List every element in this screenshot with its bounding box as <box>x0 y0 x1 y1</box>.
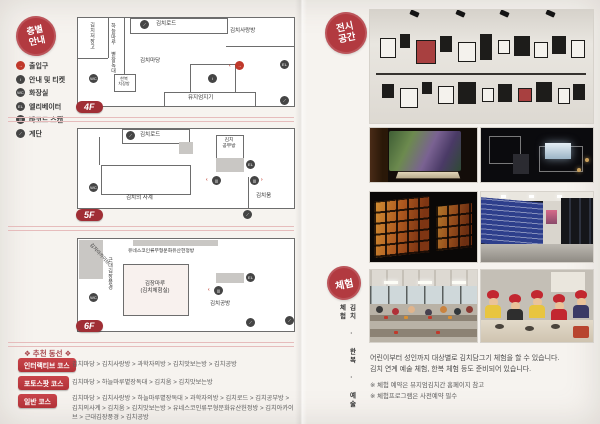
lightbox-panel <box>436 203 472 251</box>
room-label-gongbang: 김치공방 <box>210 301 230 308</box>
person <box>454 308 461 315</box>
info-ticket-icon: i <box>16 75 25 84</box>
red-basin <box>573 326 589 338</box>
exhibition-badge: 전시 공간 <box>321 8 371 58</box>
elevator-icon: EL <box>246 273 255 282</box>
floor-plan-5f: 김치로드 ⟋ 김치 공부방 EL 김치의 사계 ‹ ||| ||| › 김치움 … <box>77 128 295 209</box>
elevator-icon: EL <box>280 60 289 69</box>
frame <box>534 42 548 58</box>
barcode-icon: ||| <box>212 176 221 185</box>
barcode-icon: ||| <box>250 176 259 185</box>
wood-wall <box>370 128 388 182</box>
spotlight-icon <box>545 10 555 18</box>
person <box>376 306 383 313</box>
frame <box>380 38 396 58</box>
barcode-arrow: ‹ <box>206 177 208 183</box>
stairs-icon: ⟋ <box>246 318 255 327</box>
section-divider <box>8 226 294 231</box>
experience-side-label: 김치 · 한복 · 예술 체험 <box>336 304 356 424</box>
legend-item-entrance: → 출입구 <box>16 60 78 73</box>
frame <box>400 88 418 108</box>
frame <box>482 88 494 102</box>
frame <box>514 36 530 56</box>
room-block <box>216 273 244 283</box>
frame <box>416 40 436 64</box>
floor-tag-6f: 6F <box>76 320 103 332</box>
bowl <box>525 326 534 331</box>
wall <box>108 18 109 58</box>
wall <box>226 46 294 47</box>
room-label-unesco: 유네스코인류무형문화유산헌정방 <box>128 249 194 255</box>
info-ticket-icon: i <box>208 74 217 83</box>
video-screen <box>545 143 571 159</box>
spotlight-icon <box>455 10 465 18</box>
course-route-general: 김치마당 > 김치사랑방 > 하늘마루볕장독대 > 과학자의방 > 김치로드 >… <box>72 394 296 423</box>
experience-badge: 체험 <box>324 263 364 303</box>
projected-mural <box>389 131 461 171</box>
restroom-icon: WC <box>89 293 98 302</box>
food-item <box>404 316 408 319</box>
badge-text: 안내 <box>28 34 46 48</box>
wall <box>124 18 125 80</box>
frame <box>573 84 585 100</box>
brochure-spread: 층별 안내 → 출입구 i 안내 및 티켓 WC 화장실 EL 엘리베이터 ||… <box>0 0 600 424</box>
frame <box>458 42 476 62</box>
entrance-icon: → <box>235 61 244 70</box>
warm-light <box>585 158 589 162</box>
wall <box>78 58 108 59</box>
lit-table <box>396 172 460 179</box>
legend-item-elevator: EL 엘리베이터 <box>16 101 78 114</box>
frame <box>536 82 552 102</box>
elevator-icon: EL <box>246 160 255 169</box>
bowl <box>551 324 560 329</box>
wall <box>99 137 100 165</box>
frame <box>558 88 570 104</box>
room-seasons <box>101 165 191 195</box>
food-item <box>394 331 398 334</box>
stairs-icon: ⟋ <box>140 20 149 29</box>
section-divider <box>8 117 294 122</box>
room-label-sarangbang: 김치사랑방 <box>230 28 255 35</box>
photo-media-art-room <box>370 128 477 182</box>
ceiling-light <box>384 281 398 284</box>
food-item <box>428 316 432 319</box>
child-figure <box>573 290 589 320</box>
photo-exhibition-wall <box>370 10 593 123</box>
stairs-icon: ⟋ <box>126 131 135 140</box>
room-label-storage: 김치저장고 <box>89 22 96 56</box>
frame <box>498 40 510 54</box>
poster <box>546 210 557 224</box>
section-divider <box>8 342 294 347</box>
photo-dark-gallery <box>481 128 593 182</box>
display-rail <box>376 73 586 75</box>
floor <box>481 244 593 262</box>
room-label-maru: 김장마루 (김치체험실) <box>130 281 180 295</box>
experience-notes: ※ 체험 예약은 뮤지엄김치간 홈페이지 참고 ※ 체험프로그램은 사전예약 필… <box>370 381 592 403</box>
experience-description: 어린이부터 성인까지 대상별로 김치담그기 체험을 할 수 있습니다. 김치 연… <box>370 353 592 375</box>
food-item <box>448 316 452 319</box>
frame <box>440 36 452 52</box>
workshop-table <box>370 329 477 337</box>
frame <box>498 84 512 102</box>
wall <box>248 177 249 208</box>
frame <box>480 34 492 60</box>
warm-light <box>577 168 581 172</box>
lightbox-panel <box>374 196 430 258</box>
elevator-icon: EL <box>16 102 25 111</box>
frame <box>518 88 532 102</box>
frame <box>422 82 432 94</box>
child-figure <box>529 290 545 320</box>
floor-tag-5f: 5F <box>76 209 103 221</box>
person <box>440 306 447 313</box>
frame <box>571 40 585 58</box>
bowl <box>495 324 504 329</box>
legend: → 출입구 i 안내 및 티켓 WC 화장실 EL 엘리베이터 ||| 바코드 … <box>16 60 78 141</box>
spotlight-icon <box>499 10 509 18</box>
frame <box>458 82 476 104</box>
glass-doors <box>561 198 593 248</box>
room-label-jangdokdae: 하늘마루 볕장독대 <box>110 23 117 79</box>
course-label-general: 일반 코스 <box>18 394 57 408</box>
course-route-interactive: 김치마당 > 김치사랑방 > 과학자의방 > 김치맛보는방 > 김치공방 <box>72 360 296 370</box>
course-label-photospot: 포토스팟 코스 <box>18 376 69 390</box>
room-label-madang: 김치마당 <box>140 58 160 65</box>
ceiling-light <box>529 195 534 198</box>
ceiling-light <box>418 281 432 284</box>
floor-plan-6f: 김치아카이브 근대김장풍경 유네스코인류무형문화유산헌정방 김장마루 (김치체험… <box>77 238 295 332</box>
room-label-study: 김치 공부방 <box>218 138 240 150</box>
person <box>408 306 415 313</box>
floor-tag-4f: 4F <box>76 101 103 113</box>
floor-plan-4f: 김치로드 ⟋ 김치사랑방 김치마당 김치저장고 하늘마루 볕장독대 한복 치장방… <box>77 17 295 107</box>
barcode-icon: ||| <box>214 286 223 295</box>
barcode-arrow: ‹ <box>208 287 210 293</box>
room-label-modern: 근대김장풍경 <box>107 257 114 303</box>
room-block <box>179 142 193 154</box>
legend-item-restroom: WC 화장실 <box>16 87 78 100</box>
course-route-photospot: 김치마당 > 하늘마루볕장독대 > 김치움 > 김치맛보는방 <box>72 378 296 388</box>
frame <box>400 34 410 48</box>
course-label-interactive: 인터랙티브 코스 <box>18 358 76 372</box>
restroom-icon: WC <box>16 88 25 97</box>
stairs-icon: ⟋ <box>280 96 289 105</box>
legend-item-stairs: ⟋ 계단 <box>16 128 78 141</box>
entrance-icon: → <box>16 61 25 70</box>
frame <box>382 84 394 98</box>
barcode-arrow: › <box>261 177 263 183</box>
pedestal <box>513 154 529 174</box>
room-label-kimchi-road: 김치로드 <box>140 132 160 139</box>
person <box>466 306 473 313</box>
room-label-kimchi-road: 김치로드 <box>156 21 176 28</box>
chalk-wall <box>481 197 543 248</box>
stairs-icon: ⟋ <box>285 316 294 325</box>
child-figure <box>485 290 501 320</box>
photo-kimchi-workshop <box>370 270 477 342</box>
page-fold <box>295 0 307 424</box>
photo-lightbox-display <box>370 192 477 262</box>
window <box>551 272 585 292</box>
stairs-icon: ⟋ <box>16 129 25 138</box>
room-label-hanbok: 한복 치장방 <box>115 76 133 87</box>
photo-children-experience <box>481 270 593 342</box>
entrance-arrow: ‹ <box>229 63 231 69</box>
room-label-um: 김치움 <box>256 193 271 200</box>
room-label-keeper: 뮤지엄지기 <box>188 95 213 102</box>
floor-guide-badge: 층별 안내 <box>12 12 59 59</box>
room-block <box>133 240 218 246</box>
ceiling-light <box>452 281 466 284</box>
restroom-icon: WC <box>89 74 98 83</box>
frame <box>552 36 566 54</box>
room-label-seasons: 김치의 사계 <box>126 195 153 202</box>
photo-blue-wall-corridor <box>481 192 593 262</box>
person <box>392 308 399 315</box>
frame <box>438 86 454 104</box>
glass-wall <box>370 286 477 304</box>
spotlight-icon <box>409 10 419 18</box>
legend-item-info-ticket: i 안내 및 티켓 <box>16 74 78 87</box>
room-block <box>216 158 244 172</box>
food-item <box>436 331 440 334</box>
stairs-icon: ⟋ <box>243 210 252 219</box>
ceiling-light <box>501 195 506 198</box>
restroom-icon: WC <box>89 183 98 192</box>
food-item <box>384 316 388 319</box>
